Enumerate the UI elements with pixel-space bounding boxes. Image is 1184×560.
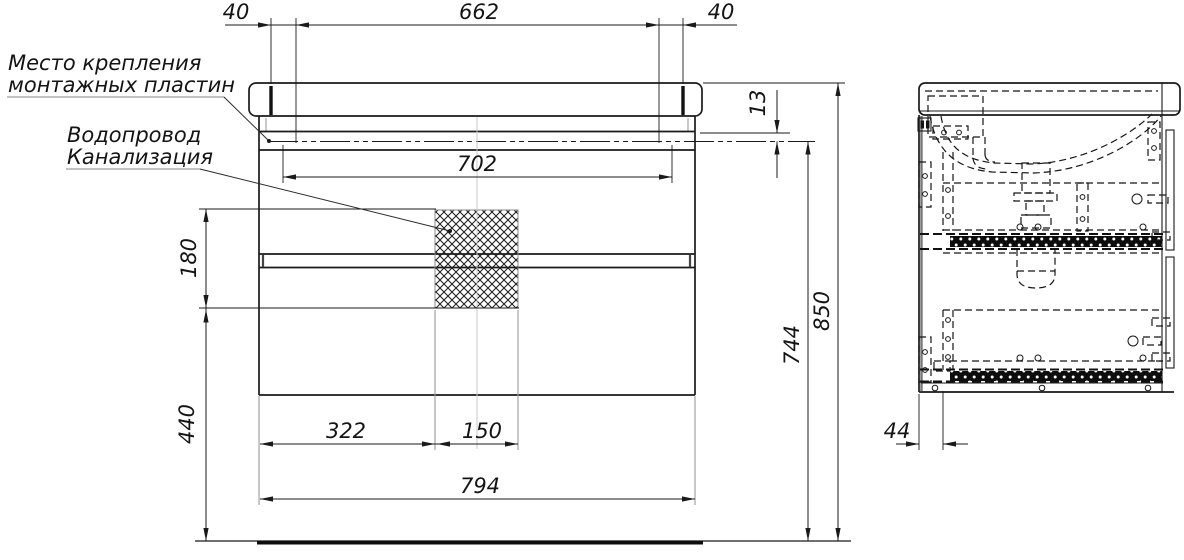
wall-rail-lower <box>1166 257 1174 368</box>
drawing-svg: 40 662 40 702 13 <box>0 0 1184 560</box>
mounting-plates-label-line1: Место крепления <box>8 51 201 75</box>
screw-icon <box>923 174 928 179</box>
screw-icon <box>1080 195 1085 200</box>
screw-icon <box>1039 385 1045 391</box>
roller-icon <box>1035 355 1041 361</box>
dimension-794: 794 <box>260 474 695 502</box>
side-lower-drawer <box>920 310 1163 382</box>
side-upper-drawer <box>920 152 1163 253</box>
screw-icon <box>1152 146 1157 151</box>
dim-662: 662 <box>459 0 499 24</box>
leader-dot <box>448 229 452 233</box>
screw-icon <box>957 130 962 135</box>
leader-dot <box>267 139 271 143</box>
dimensions: 40 662 40 702 13 <box>175 0 968 541</box>
plumbing-label-line2: Канализация <box>67 145 213 169</box>
dim-top-left-40: 40 <box>223 0 250 24</box>
dimension-13: 13 <box>700 90 790 178</box>
basin-outer-curve <box>930 116 1161 173</box>
cam-lock-icon <box>1132 194 1142 204</box>
dim-440: 440 <box>175 404 199 444</box>
dim-794: 794 <box>460 474 500 498</box>
cam-fitting <box>1148 195 1168 203</box>
dim-850: 850 <box>810 291 834 331</box>
dim-322: 322 <box>326 419 366 443</box>
technical-drawing-vanity: 40 662 40 702 13 <box>0 0 1184 560</box>
cam-fitting <box>1152 353 1170 361</box>
drawer-bracket <box>1077 183 1088 231</box>
screw-icon <box>1145 385 1151 391</box>
screw-icon <box>946 188 951 193</box>
side-mounting-bracket <box>918 96 983 139</box>
dimension-44: 44 <box>884 391 968 450</box>
position-mark-glyph <box>921 121 925 129</box>
upper-slide-rail-band <box>950 236 1162 247</box>
side-hardware-fittings <box>919 122 1170 382</box>
cam-fitting <box>1152 318 1170 326</box>
drain-waist <box>1026 201 1044 215</box>
bracket-outline <box>928 96 983 137</box>
drain-flange <box>1014 193 1057 201</box>
mounting-plates-label-line2: монтажных пластин <box>8 73 235 97</box>
dim-150: 150 <box>462 419 502 443</box>
front-view <box>195 83 851 543</box>
countertop-washbasin <box>249 83 702 131</box>
washbasin-top-outline <box>249 83 702 116</box>
pipe-elbow <box>985 155 995 162</box>
cam-fitting <box>1143 337 1161 345</box>
cabinet-body <box>259 116 815 395</box>
position-mark-glyph <box>926 121 930 129</box>
floor-line <box>195 541 851 543</box>
cam-lock-icon <box>1128 336 1138 346</box>
roller-icon <box>1017 224 1023 230</box>
screw-icon <box>1152 129 1157 134</box>
dim-top-right-40: 40 <box>708 0 735 24</box>
screw-icon <box>946 214 951 219</box>
dim-702: 702 <box>457 152 497 176</box>
dim-13: 13 <box>746 90 770 117</box>
dim-180: 180 <box>177 238 201 278</box>
screw-icon <box>946 318 951 323</box>
drain-body <box>1022 163 1050 193</box>
lower-slide-rail-band <box>950 371 1162 381</box>
roller-icon <box>1017 355 1023 361</box>
siphon-trap-bell <box>1017 249 1055 288</box>
plumbing-label-line1: Водопровод <box>67 123 201 147</box>
dim-744: 744 <box>780 325 804 365</box>
screw-icon <box>923 350 928 355</box>
drain-coupling <box>1021 215 1051 228</box>
side-view <box>918 83 1180 392</box>
side-hidden-plumbing <box>973 137 1057 288</box>
screw-icon <box>1080 217 1085 222</box>
side-hidden-basin <box>925 91 1161 173</box>
dim-44: 44 <box>884 419 911 443</box>
dimension-heights: 744 850 <box>703 83 845 541</box>
screw-icon <box>946 337 951 342</box>
roller-icon <box>1140 224 1146 230</box>
dimension-top-row: 40 662 40 <box>223 0 737 143</box>
roller-icon <box>1035 224 1041 230</box>
side-countertop-outline <box>919 83 1180 115</box>
screw-icon <box>946 355 951 360</box>
roller-icon <box>1140 355 1146 361</box>
screw-icon <box>932 385 938 391</box>
screw-icon <box>923 192 928 197</box>
